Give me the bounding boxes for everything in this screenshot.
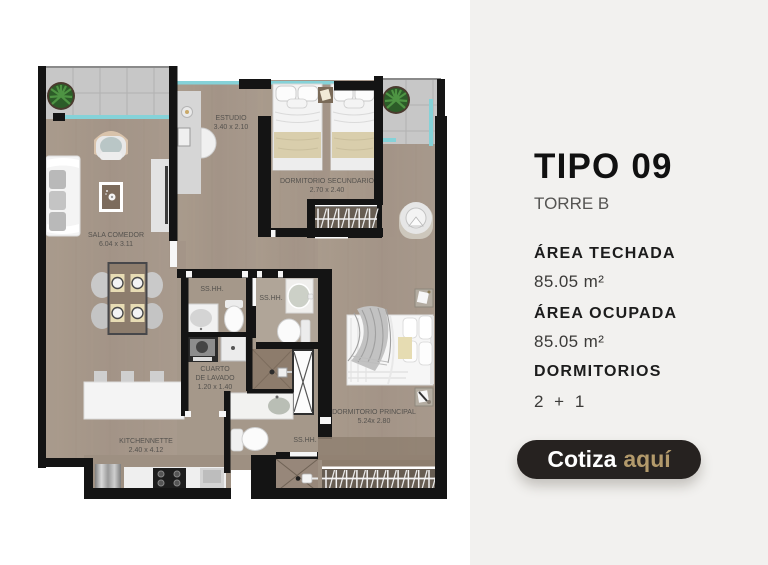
svg-text:ESTUDIO: ESTUDIO [215,115,247,122]
svg-text:KITCHENNETTE: KITCHENNETTE [119,438,173,445]
svg-text:DORMITORIO SECUNDARIO: DORMITORIO SECUNDARIO [280,178,375,185]
svg-text:6.04 x 3.11: 6.04 x 3.11 [99,241,133,248]
svg-text:2.40 x 4.12: 2.40 x 4.12 [129,447,164,454]
svg-text:SS.HH.: SS.HH. [200,286,223,293]
svg-text:SS.HH.: SS.HH. [259,295,282,302]
svg-text:5.24x 2.80: 5.24x 2.80 [358,418,391,425]
svg-text:CUARTO: CUARTO [200,366,230,373]
svg-text:DORMITORIO PRINCIPAL: DORMITORIO PRINCIPAL [332,409,416,416]
svg-text:SALA COMEDOR: SALA COMEDOR [88,232,144,239]
svg-text:SS.HH.: SS.HH. [293,437,316,444]
svg-text:1.20 x 1.40: 1.20 x 1.40 [198,384,233,391]
svg-text:3.40 x 2.10: 3.40 x 2.10 [214,124,249,131]
svg-text:DE LAVADO: DE LAVADO [195,375,235,382]
svg-text:2.70 x 2.40: 2.70 x 2.40 [310,187,345,194]
